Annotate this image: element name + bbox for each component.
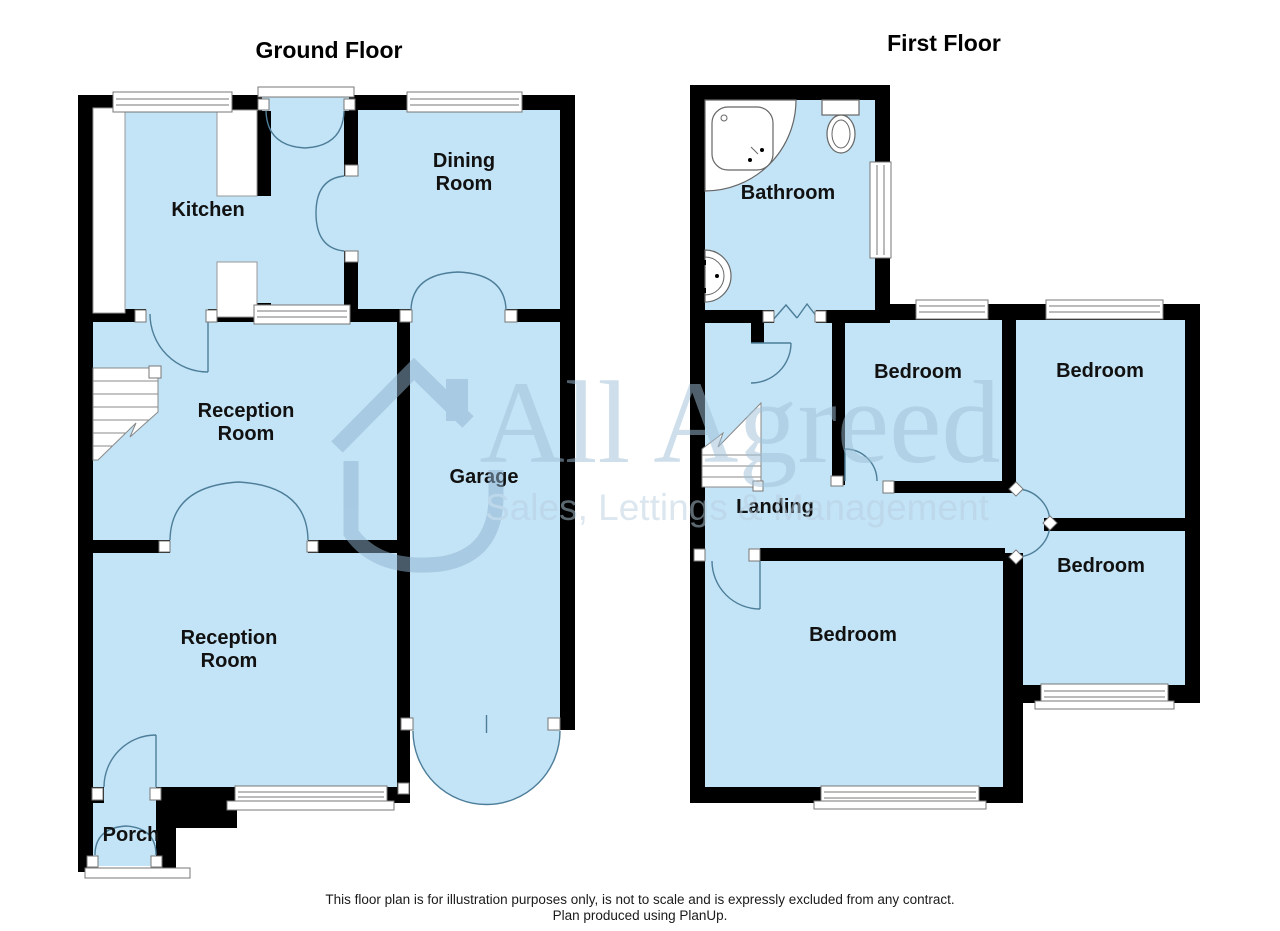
kitchen-window [113,92,232,112]
room-label-dining-line2: Room [436,173,493,195]
watermark-brand-text: All Agreed [479,357,1000,488]
bedroom-top-right-window [1046,300,1163,319]
porch-door-sill [85,868,190,878]
kitchen-counter-bottom [217,262,257,317]
room-label-reception-front-line1: Reception [198,400,295,422]
reception-back-window [227,786,394,810]
kitchen-counter-top [217,110,257,196]
bedroom-mid-window [916,300,988,319]
room-label-kitchen: Kitchen [171,199,244,221]
footer: This floor plan is for illustration purp… [325,892,954,923]
dining-window [407,92,522,112]
bedroom-back-right-window [1035,684,1174,709]
entry-door-sill [258,87,354,97]
room-label-bedroom-back-right: Bedroom [1057,555,1145,577]
room-label-bedroom-top-right: Bedroom [1056,360,1144,382]
watermark-tagline-text: Sales, Lettings & Management [485,487,990,528]
garage-door-swing-floor [413,722,560,805]
room-label-reception-back-line2: Room [201,650,258,672]
floorplan-page: Ground Floor [0,0,1280,931]
room-label-bedroom-front: Bedroom [809,624,897,646]
room-label-porch: Porch [103,824,160,846]
kitchen-counter-left [93,108,125,313]
footer-credit: Plan produced using PlanUp. [553,908,728,923]
room-label-reception-front-line2: Room [218,423,275,445]
first-floor-title: First Floor [887,30,1001,56]
ground-floor-title: Ground Floor [256,37,403,63]
room-label-reception-back-line1: Reception [181,627,278,649]
footer-disclaimer: This floor plan is for illustration purp… [325,892,954,907]
room-label-dining-line1: Dining [433,150,495,172]
floorplan-svg: Ground Floor [0,0,1280,931]
bedroom-front-window [814,786,986,809]
bathroom-window [870,162,891,258]
hall-reception-internal-window [254,305,350,324]
room-label-bathroom: Bathroom [741,182,835,204]
